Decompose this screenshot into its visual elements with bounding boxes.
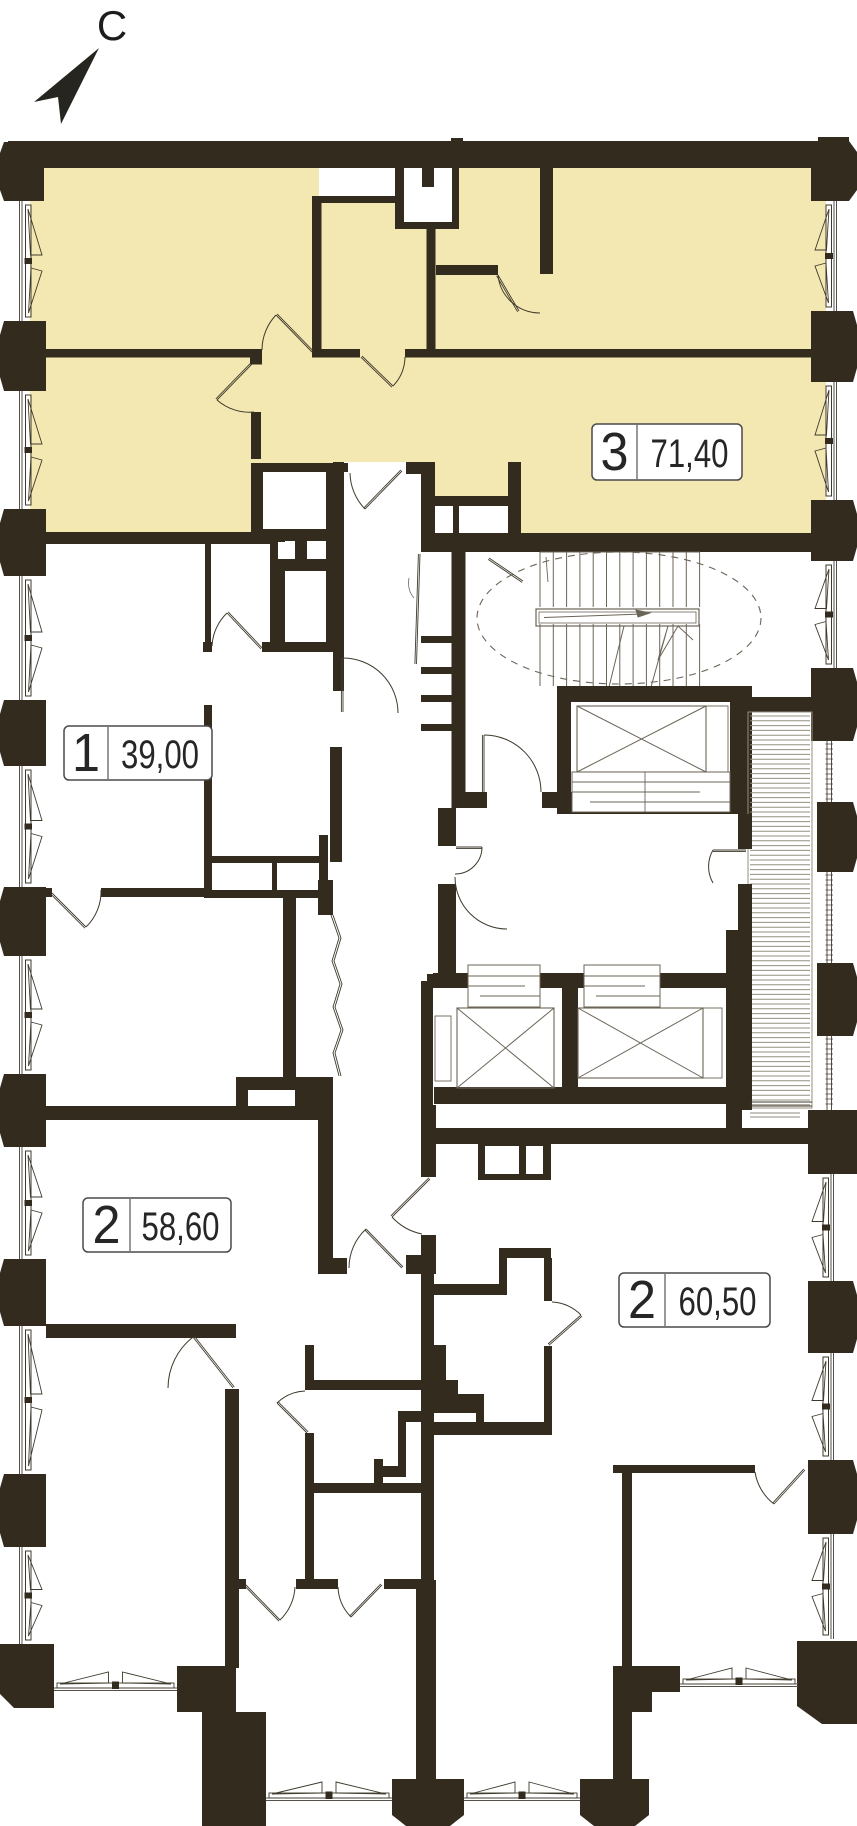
svg-text:71,40: 71,40	[651, 432, 729, 476]
svg-text:2: 2	[628, 1270, 656, 1330]
svg-text:60,50: 60,50	[679, 1280, 757, 1324]
svg-text:1: 1	[72, 723, 100, 783]
svg-text:58,60: 58,60	[142, 1205, 220, 1249]
svg-text:С: С	[97, 2, 127, 49]
svg-text:2: 2	[93, 1195, 121, 1255]
svg-text:39,00: 39,00	[121, 733, 199, 777]
svg-text:3: 3	[601, 422, 629, 482]
